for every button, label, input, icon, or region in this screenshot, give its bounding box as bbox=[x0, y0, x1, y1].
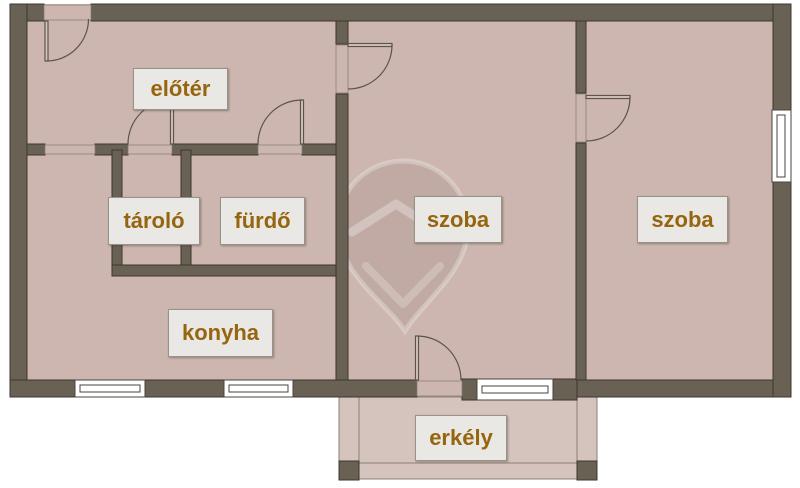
wall-right-upper bbox=[773, 4, 791, 110]
wall-rooms-lower bbox=[576, 143, 586, 380]
floor-plan: előtér tároló fürdő konyha szoba szoba e… bbox=[0, 0, 800, 488]
room-label-room-left: szoba bbox=[414, 196, 502, 243]
room-label-kitchen: konyha bbox=[168, 309, 273, 357]
window-room1-balcony bbox=[477, 379, 553, 400]
wall-hall-4 bbox=[302, 144, 336, 155]
wall-bottom-1 bbox=[10, 380, 75, 397]
wall-left bbox=[10, 4, 27, 397]
bath-door-opening bbox=[258, 145, 302, 154]
wall-room1-lower bbox=[336, 94, 348, 380]
room-label-bathroom: fürdő bbox=[220, 197, 305, 245]
wall-bath-bottom bbox=[112, 265, 336, 276]
wall-bottom-2 bbox=[145, 380, 224, 397]
room2-door-opening bbox=[576, 94, 586, 142]
room-label-foyer: előtér bbox=[133, 68, 228, 110]
wall-bottom-4 bbox=[577, 380, 791, 397]
wall-bottom-post-2 bbox=[553, 379, 577, 400]
wall-top bbox=[91, 4, 791, 21]
entrance-opening bbox=[44, 5, 91, 20]
wall-rooms-upper bbox=[576, 21, 586, 93]
window-kitchen-1 bbox=[75, 380, 145, 397]
wall-room1-upper bbox=[336, 21, 348, 44]
window-room2-right bbox=[772, 110, 791, 182]
wall-right-lower bbox=[773, 182, 791, 397]
room-label-balcony: erkély bbox=[415, 415, 507, 461]
room1-door-opening bbox=[336, 45, 348, 93]
balcony-door-opening bbox=[417, 381, 462, 396]
kitchen-passage-opening bbox=[45, 145, 95, 154]
wall-bottom-3 bbox=[293, 380, 417, 397]
room-label-room-right: szoba bbox=[637, 196, 728, 243]
wall-bottom-post-1 bbox=[462, 379, 477, 400]
room-label-storage: tároló bbox=[108, 197, 200, 245]
storage-door-opening bbox=[128, 145, 172, 154]
wall-hall-1 bbox=[27, 144, 45, 155]
window-kitchen-2 bbox=[224, 380, 293, 397]
